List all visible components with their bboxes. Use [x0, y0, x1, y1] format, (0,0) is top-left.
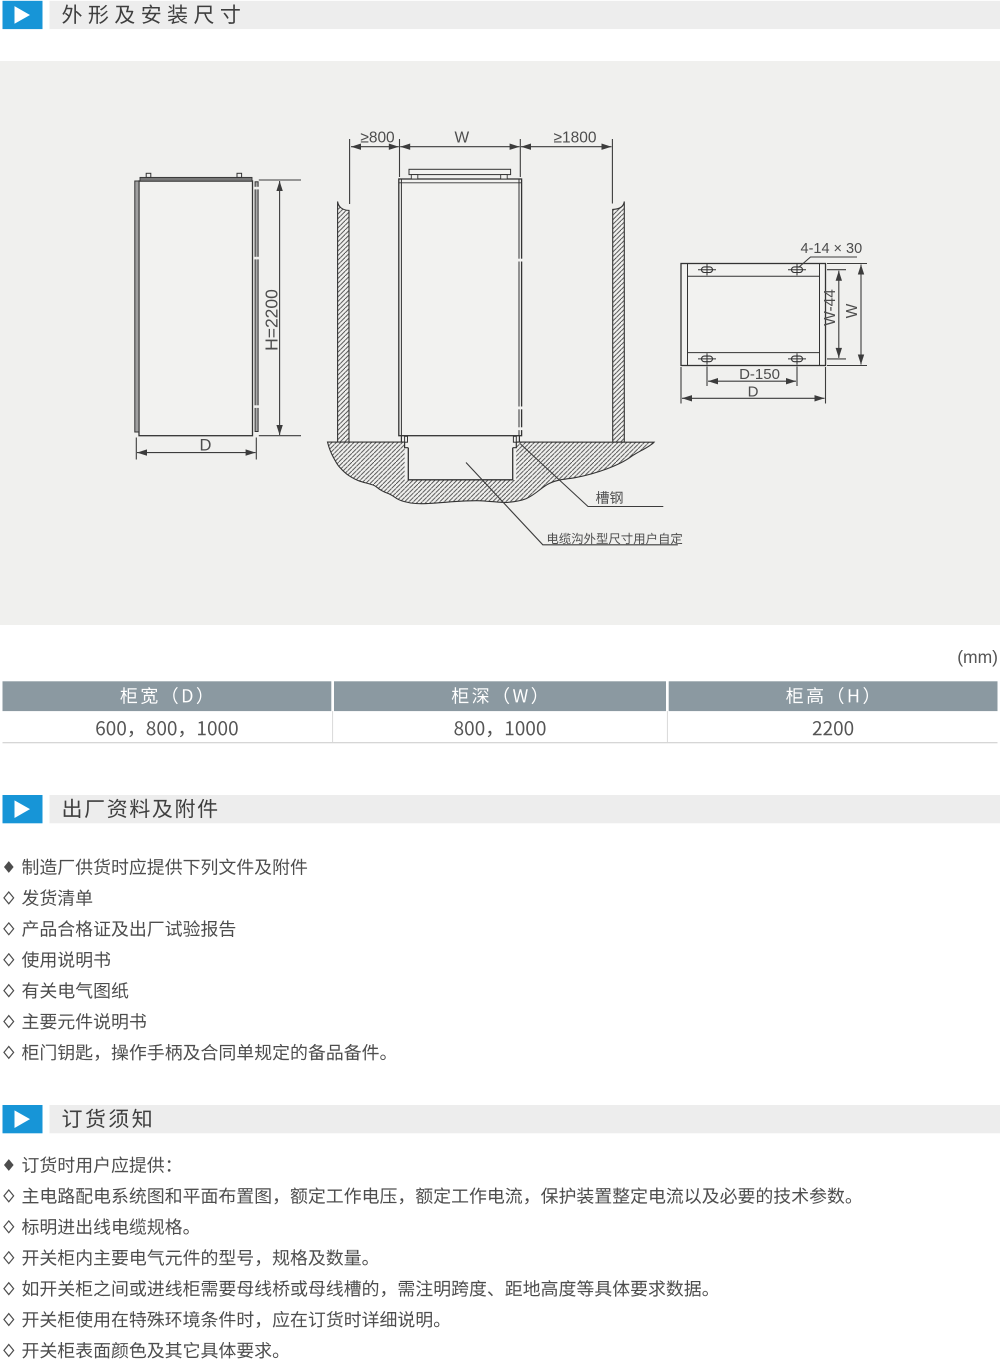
svg-text:W-44: W-44 — [822, 289, 839, 326]
svg-text:D: D — [200, 436, 212, 454]
svg-text:≥1800: ≥1800 — [554, 130, 597, 147]
svg-text:≥800: ≥800 — [360, 130, 395, 147]
svg-text:4-14 × 30: 4-14 × 30 — [801, 241, 863, 257]
svg-text:D: D — [748, 383, 759, 400]
svg-text:D-150: D-150 — [739, 366, 780, 383]
svg-text:(mm): (mm) — [957, 647, 998, 667]
svg-text:H=2200: H=2200 — [262, 289, 282, 351]
svg-text:W: W — [454, 130, 469, 147]
svg-text:W: W — [844, 303, 861, 318]
